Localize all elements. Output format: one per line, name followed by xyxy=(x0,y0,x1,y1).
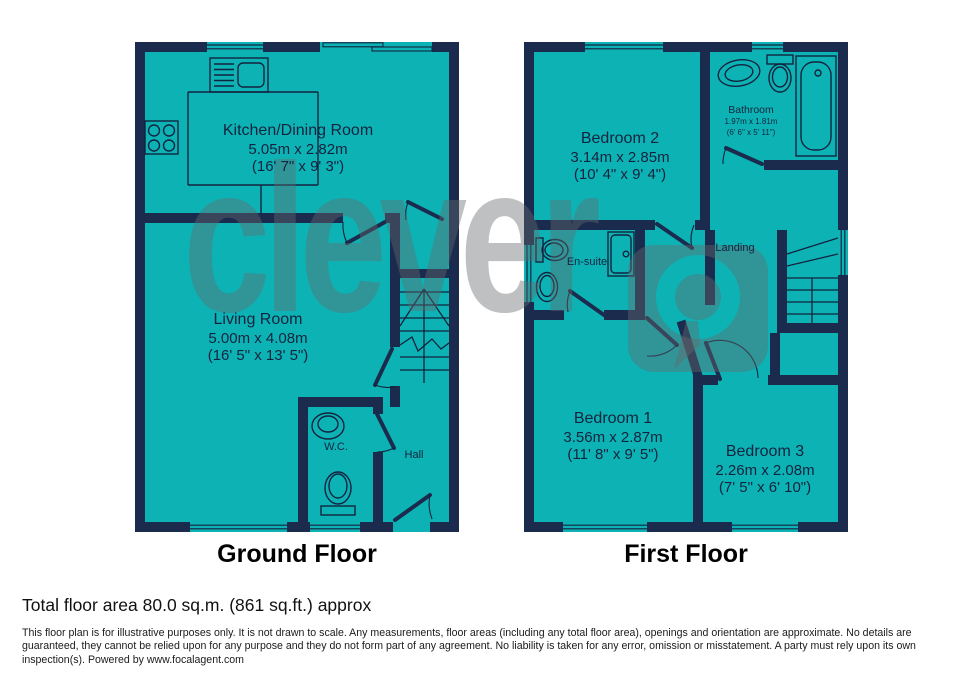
first-floor-title: First Floor xyxy=(524,540,848,569)
floorplan-canvas: clever Kitchen/Dining Room 5.05m x 2.82m… xyxy=(0,0,980,685)
first-floor-fill xyxy=(524,42,848,532)
ground-floor-plan xyxy=(135,42,459,532)
ground-floor-fill xyxy=(135,42,459,532)
first-floor-plan xyxy=(524,42,848,532)
total-floor-area: Total floor area 80.0 sq.m. (861 sq.ft.)… xyxy=(22,595,371,616)
ground-floor-title: Ground Floor xyxy=(135,540,459,569)
disclaimer-text: This floor plan is for illustrative purp… xyxy=(22,627,962,667)
front-door-opening xyxy=(393,522,430,532)
